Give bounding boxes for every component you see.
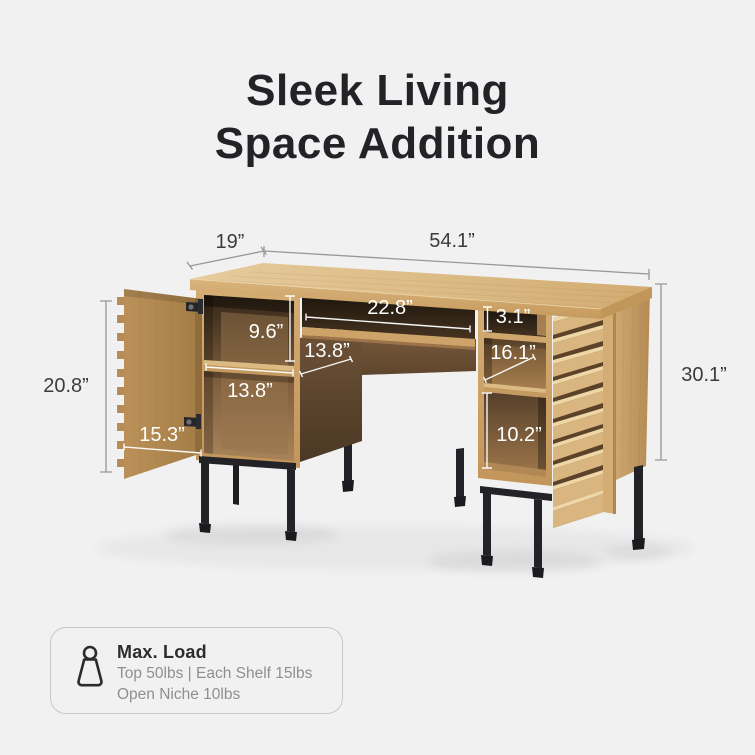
- dim-top-niche-label: 3.1”: [496, 306, 530, 328]
- dim-depth: 19”: [187, 231, 267, 270]
- dim-overall-height-label: 30.1”: [681, 364, 727, 386]
- dim-left-height: 20.8”: [43, 301, 112, 472]
- louver-slats: [553, 304, 603, 528]
- dim-overall-height: 30.1”: [655, 284, 727, 460]
- dim-lower-right-label: 10.2”: [496, 424, 542, 446]
- dim-width-label: 54.1”: [429, 230, 475, 252]
- louvered-door-open: [553, 300, 616, 528]
- dim-door-width-label: 15.3”: [139, 424, 185, 446]
- dim-body-depth-label: 13.8”: [304, 340, 350, 362]
- left-door-slat-notches: [117, 297, 125, 467]
- max-load-card: Max. Load Top 50lbs | Each Shelf 15lbs O…: [50, 627, 343, 714]
- dim-upper-shelf-label: 9.6”: [249, 321, 283, 343]
- dim-left-height-label: 20.8”: [43, 375, 89, 397]
- dim-tray-label: 22.8”: [367, 297, 413, 319]
- max-load-heading: Max. Load: [117, 640, 312, 664]
- floor-shadow: [95, 524, 695, 573]
- max-load-line-2: Open Niche 10lbs: [117, 685, 312, 706]
- dim-depth-label: 19”: [216, 231, 245, 253]
- product-infographic: Sleek Living Space Addition: [0, 0, 755, 755]
- left-cabinet: [196, 290, 300, 468]
- right-side-panel: [616, 288, 650, 480]
- dim-lower-shelf-label: 13.8”: [227, 380, 273, 402]
- center-section: [300, 295, 476, 462]
- weight-icon: [71, 644, 109, 694]
- right-cabinet: [478, 307, 552, 486]
- max-load-line-1: Top 50lbs | Each Shelf 15lbs: [117, 664, 312, 685]
- dim-middle-depth-label: 16.1”: [490, 342, 536, 364]
